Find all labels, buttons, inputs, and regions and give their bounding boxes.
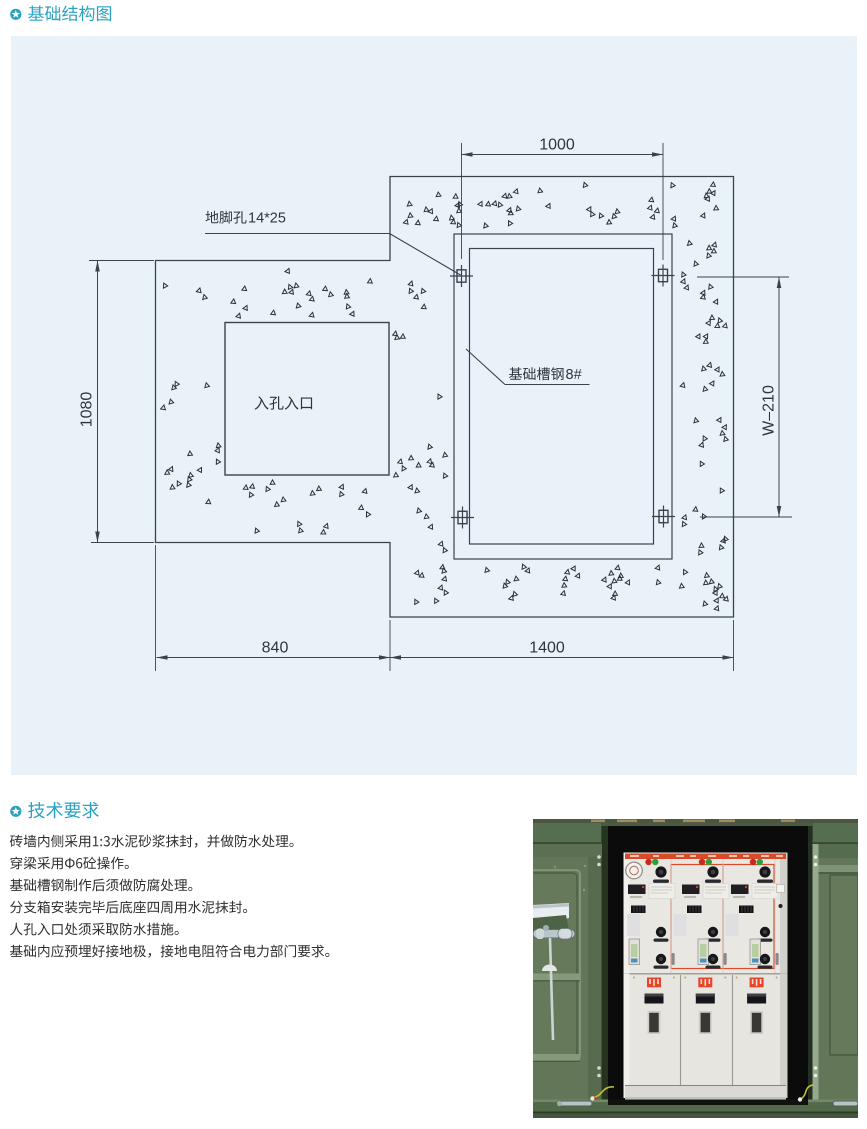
svg-text:W–210: W–210: [761, 385, 778, 436]
svg-text:1000: 1000: [539, 137, 575, 154]
svg-text:1400: 1400: [529, 640, 565, 657]
svg-text:8#: 8#: [566, 367, 582, 383]
